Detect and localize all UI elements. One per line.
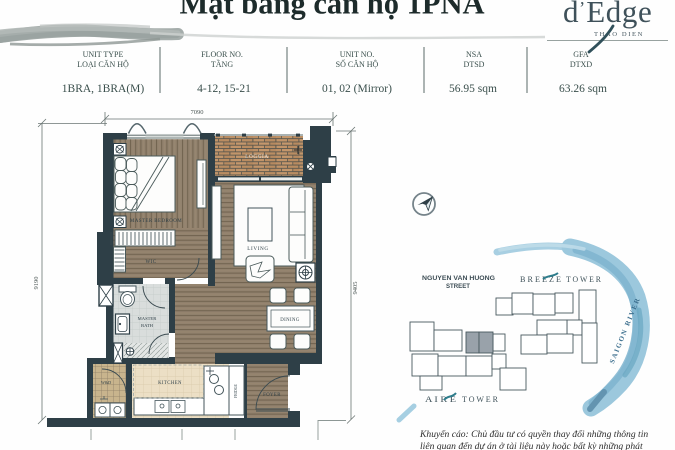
svg-text:BATH: BATH xyxy=(141,323,154,328)
svg-text:DINING: DINING xyxy=(280,318,300,323)
svg-text:DTSD: DTSD xyxy=(464,60,485,69)
svg-text:MASTER BEDROOM: MASTER BEDROOM xyxy=(130,219,182,224)
svg-text:9405: 9405 xyxy=(352,282,359,295)
svg-text:LIVING: LIVING xyxy=(247,246,268,252)
svg-text:NSA: NSA xyxy=(466,50,482,59)
svg-text:THAO DIEN: THAO DIEN xyxy=(594,31,644,38)
svg-text:d’Edge: d’Edge xyxy=(563,0,652,29)
svg-text:DTXD: DTXD xyxy=(570,60,592,69)
svg-text:LOẠI CĂN HỘ: LOẠI CĂN HỘ xyxy=(77,59,129,69)
svg-text:63.26 sqm: 63.26 sqm xyxy=(559,83,607,95)
svg-text:FLOOR NO.: FLOOR NO. xyxy=(201,50,243,59)
svg-text:KITCHEN: KITCHEN xyxy=(158,381,182,386)
svg-text:FOYER: FOYER xyxy=(263,393,281,398)
svg-text:liên quan đến dự án ở tài liệu: liên quan đến dự án ở tài liệu này hoặc … xyxy=(420,441,643,450)
svg-text:7090: 7090 xyxy=(191,109,204,116)
svg-text:4-12, 15-21: 4-12, 15-21 xyxy=(197,83,251,95)
svg-text:GFA: GFA xyxy=(573,50,589,59)
svg-text:MASTER: MASTER xyxy=(138,316,158,321)
svg-text:LOGGIA: LOGGIA xyxy=(245,154,268,160)
svg-text:W&D: W&D xyxy=(101,380,111,385)
svg-text:1BRA, 1BRA(M): 1BRA, 1BRA(M) xyxy=(62,83,145,95)
svg-text:UNIT TYPE: UNIT TYPE xyxy=(83,50,124,59)
svg-text:Mặt bằng căn hộ 1PNA: Mặt bằng căn hộ 1PNA xyxy=(179,0,484,21)
svg-text:TẦNG: TẦNG xyxy=(211,59,233,69)
svg-text:UNIT NO.: UNIT NO. xyxy=(340,50,375,59)
svg-text:9190: 9190 xyxy=(33,277,40,290)
svg-text:FRIDGE: FRIDGE xyxy=(234,383,238,397)
svg-text:56.95 sqm: 56.95 sqm xyxy=(449,83,497,95)
svg-text:Khuyến cáo: Chủ đầu tư có quyề: Khuyến cáo: Chủ đầu tư có quyền thay đổi… xyxy=(419,429,648,440)
svg-text:NGUYEN VAN HUONG: NGUYEN VAN HUONG xyxy=(422,275,495,282)
svg-text:STREET: STREET xyxy=(446,283,470,290)
svg-text:SỐ CĂN HỘ: SỐ CĂN HỘ xyxy=(336,59,379,69)
svg-text:T O W E R: T O W E R xyxy=(462,394,498,404)
svg-text:T O W E R: T O W E R xyxy=(566,274,601,284)
svg-text:WIC: WIC xyxy=(146,260,157,265)
svg-text:01, 02 (Mirror): 01, 02 (Mirror) xyxy=(322,83,392,95)
